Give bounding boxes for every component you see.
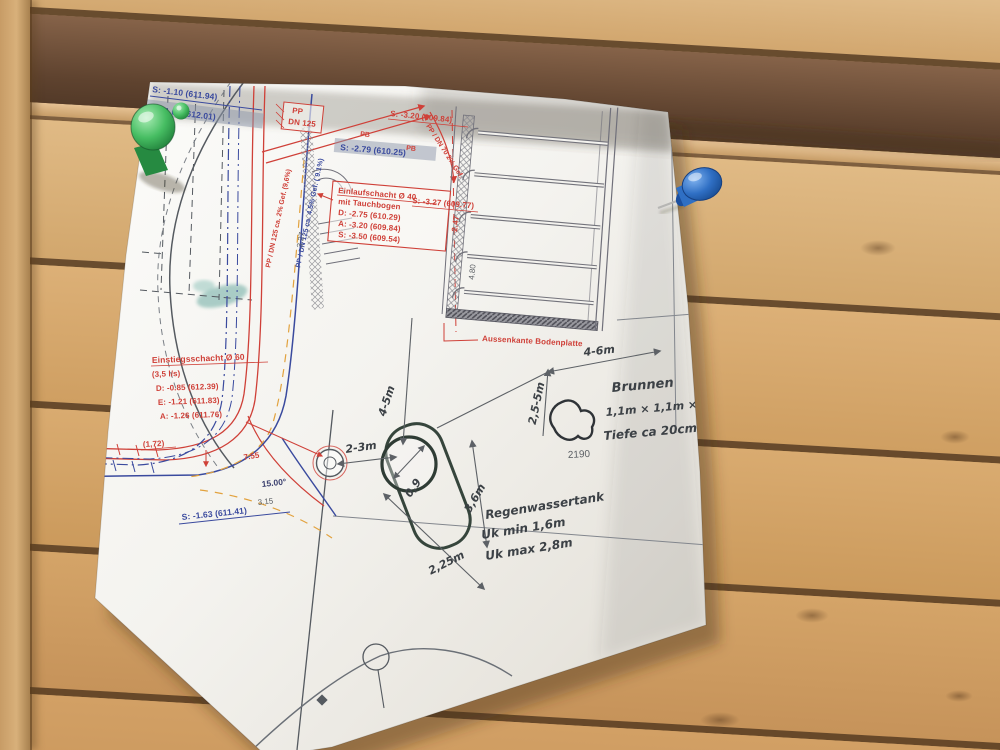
board-shadow	[655, 118, 1000, 158]
green-pin-ball	[173, 103, 190, 120]
label-einstieg-sub: (3,5 l/s)	[152, 369, 181, 379]
label-pb-2: PB	[406, 145, 416, 153]
label-dim-315: 3.15	[257, 496, 274, 507]
label-dim-480: 4.80	[467, 263, 478, 280]
label-dim-172: (1,72)	[143, 439, 165, 449]
label-pp-box-1: PP	[292, 106, 304, 116]
hand-ref-2190: 2190	[568, 449, 591, 461]
crayon-smudge	[193, 280, 215, 292]
label-pb-1: PB	[360, 131, 370, 139]
plan-photo-overlay: S: -1.10 (611.94) S: -1.03 (612.01) S: -…	[0, 0, 1000, 750]
photo-scene: S: -1.10 (611.94) S: -1.03 (612.01) S: -…	[0, 0, 1000, 750]
